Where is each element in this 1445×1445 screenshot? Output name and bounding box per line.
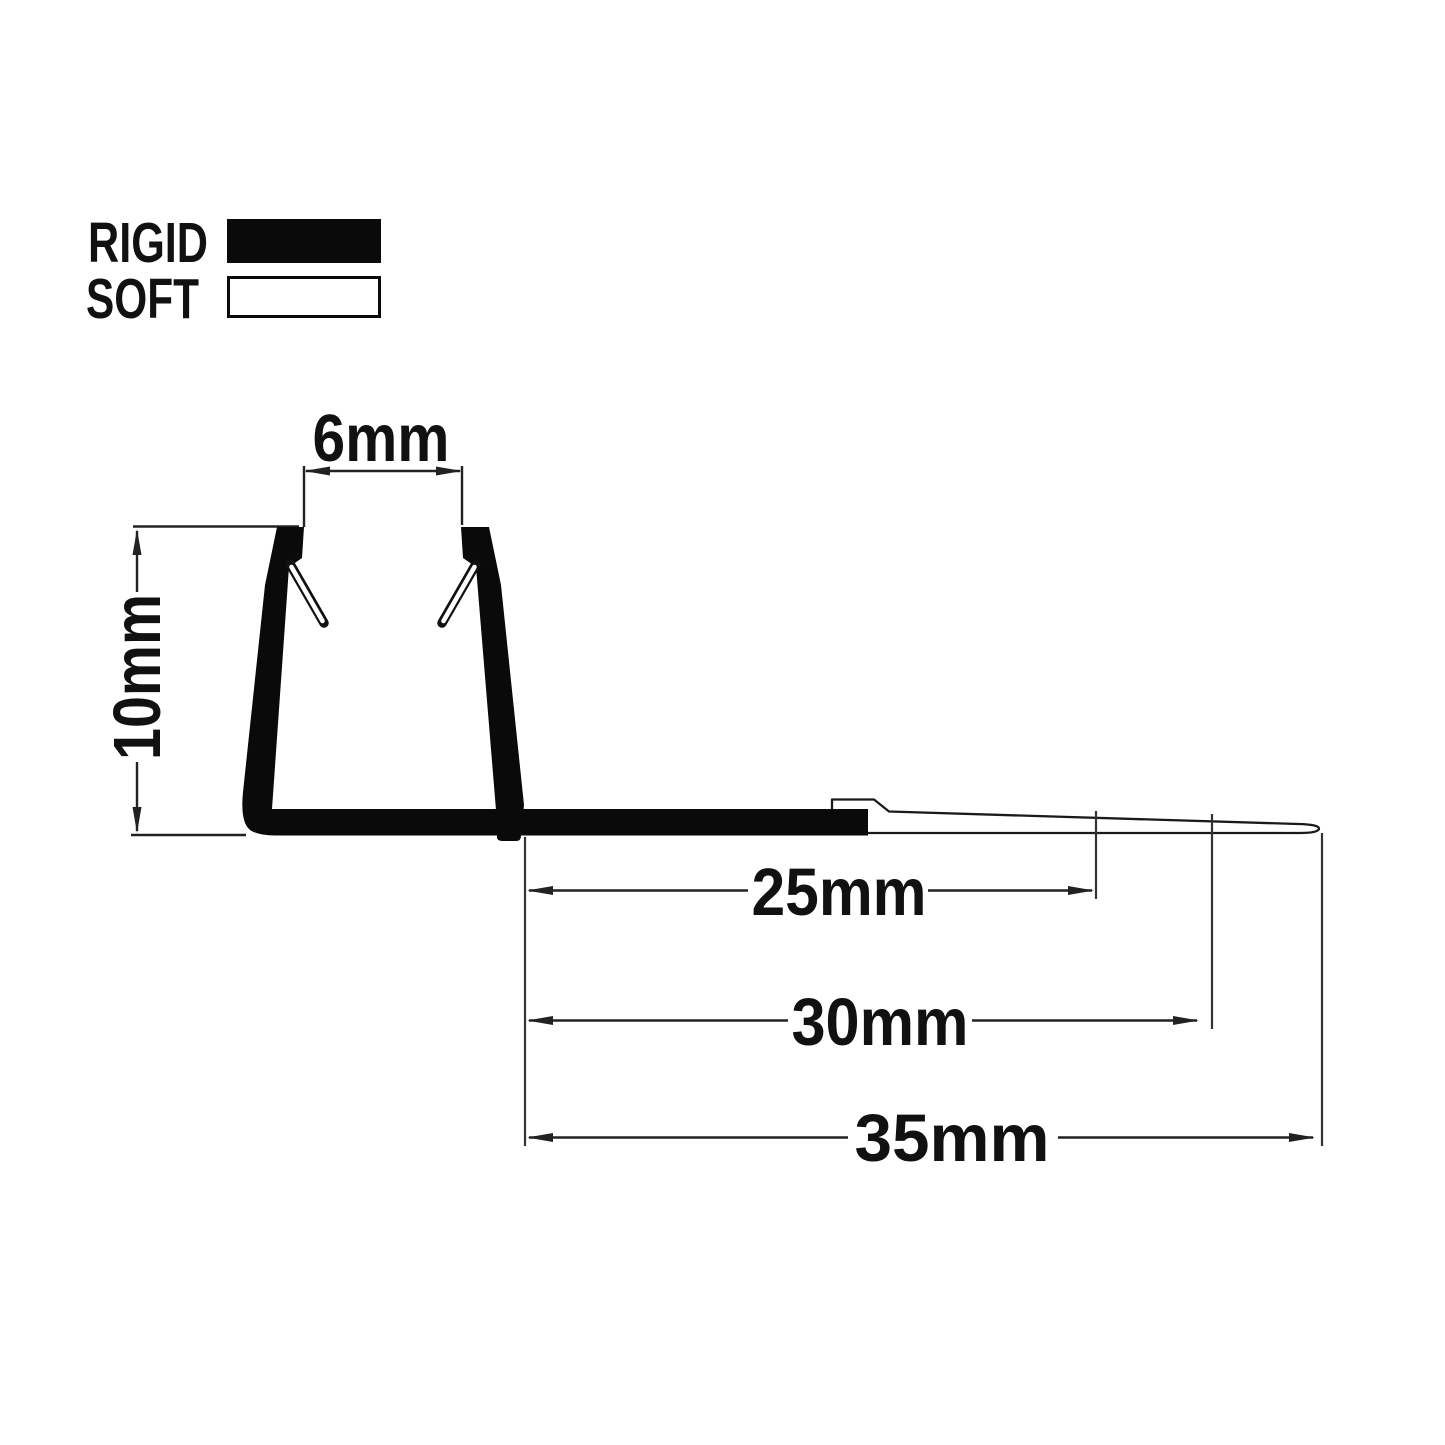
svg-text:SOFT: SOFT — [86, 267, 199, 331]
svg-text:RIGID: RIGID — [88, 211, 208, 275]
svg-text:10mm: 10mm — [100, 594, 175, 760]
svg-text:35mm: 35mm — [855, 1101, 1050, 1176]
svg-text:6mm: 6mm — [313, 401, 450, 476]
svg-text:25mm: 25mm — [752, 855, 927, 930]
svg-text:30mm: 30mm — [792, 985, 969, 1060]
